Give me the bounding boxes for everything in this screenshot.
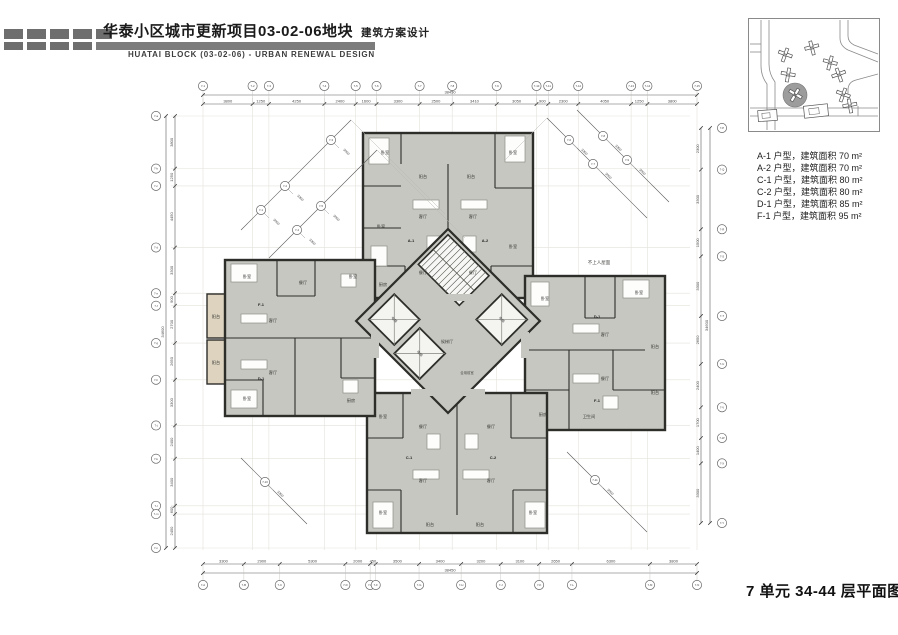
- dim-value: 3300: [169, 397, 174, 407]
- grid-bubble-label: 7-5: [354, 84, 358, 88]
- room-label: 厨房: [539, 411, 547, 418]
- dim-value: 2650: [169, 356, 174, 366]
- grid-bubble-label: 7-D: [343, 583, 348, 587]
- room-label: 餐厅: [419, 423, 427, 430]
- dim-value: 2700: [169, 319, 174, 329]
- wing-south: [367, 393, 547, 533]
- grid-bubble-label: 7-10: [534, 84, 540, 88]
- grid-bubble-label: 7-F: [374, 583, 378, 587]
- dim-value: 3300: [219, 558, 229, 563]
- unit-type-tag: C-2: [490, 455, 497, 460]
- room-label: 餐厅: [487, 423, 495, 430]
- dim-value: 1500: [695, 238, 700, 248]
- grid-bubble-label: 7-K: [537, 583, 541, 587]
- legend-item: C-2 户型，建筑面积 80 m²: [757, 186, 863, 198]
- room-label: 卫生间: [583, 413, 596, 420]
- dim-value: 2400: [169, 437, 174, 447]
- furniture: [525, 502, 545, 528]
- room-label: 卧室: [541, 295, 549, 302]
- furniture: [413, 200, 439, 209]
- grid-bubble-label: 7-13: [628, 84, 634, 88]
- dim-value: 1600: [362, 98, 372, 103]
- dim-value: 450: [370, 558, 377, 563]
- grid-bubble-label: 7-H: [459, 583, 464, 587]
- room-label: 餐厅: [299, 279, 307, 286]
- furniture: [343, 380, 358, 393]
- dim-value: 3800: [223, 98, 233, 103]
- grid-bubble-label: 7-h: [154, 378, 158, 382]
- tower-wing: [847, 99, 851, 105]
- dim-value: 2400: [336, 98, 346, 103]
- dim-chain: 7-A33007-B29007-C53007-D20007-E4507-F350…: [198, 558, 701, 589]
- project-subtitle-en: HUATAI BLOCK (03-02-06) - URBAN RENEWAL …: [104, 50, 375, 59]
- furniture: [573, 374, 599, 383]
- room-label: 阳台: [651, 343, 659, 350]
- furniture: [231, 264, 257, 282]
- furniture: [427, 434, 440, 449]
- dim-value: 900: [539, 98, 546, 103]
- dim-line: [567, 452, 647, 532]
- grid-bubble-label: 7-e: [154, 291, 158, 295]
- grid-bubble-label: 7-c: [154, 184, 158, 188]
- room-label: 卧室: [243, 395, 251, 402]
- dim-value: 2300: [559, 98, 569, 103]
- furniture: [465, 434, 478, 449]
- dim-value: 3500: [393, 558, 403, 563]
- corridor-opening: [411, 294, 485, 301]
- dim-value: 3300: [296, 194, 304, 202]
- grid-bubble-label: 7-n: [154, 546, 158, 550]
- grid-bubble-label: 7-f: [154, 304, 157, 308]
- dim-value: 3000: [342, 148, 350, 156]
- header-deco-block: [73, 42, 92, 50]
- header-rule-bar: [96, 42, 375, 50]
- core-label: 合用前室: [460, 370, 474, 375]
- unit-type-tag: A-1: [408, 238, 415, 243]
- dim-value: 3000: [606, 488, 614, 496]
- dim-chain: 7-138007-212507-342507-424007-516007-633…: [198, 81, 701, 105]
- dim-value: 3050: [512, 98, 522, 103]
- header-deco-block: [73, 29, 92, 39]
- header-deco-block: [4, 42, 23, 50]
- legend-item: A-1 户型，建筑面积 70 m²: [757, 150, 863, 162]
- dim-value: 4250: [292, 98, 302, 103]
- grid-bubble-label: 7-M: [648, 583, 653, 587]
- room-label: 卧室: [635, 289, 643, 296]
- diagonal-dim-chain: 7-113000: [567, 452, 647, 532]
- grid-bubble-label: 7-5: [319, 204, 323, 208]
- furniture: [623, 280, 649, 298]
- corridor-opening: [371, 332, 379, 358]
- dim-value: 3300: [276, 490, 284, 498]
- dim-value: 3300: [695, 281, 700, 291]
- lowrise-block: [758, 109, 778, 121]
- dim-value: 1250: [635, 98, 645, 103]
- highlighted-site-circle: [783, 83, 807, 107]
- dim-value: 4450: [169, 212, 174, 222]
- dim-value: 600: [169, 506, 174, 513]
- room-label: 客厅: [419, 477, 427, 484]
- grid-bubble-label: 7-U: [720, 362, 725, 366]
- grid-bubble-label: 7-2: [283, 184, 287, 188]
- dim-value: 3300: [308, 238, 316, 246]
- grid-bubble-label: 7-4: [322, 84, 326, 88]
- room-label: 厨房: [347, 397, 355, 404]
- diagonal-dim-chain: 7-833007-93000: [577, 110, 669, 202]
- core-label: 候梯厅: [441, 338, 454, 345]
- dim-total: 38450: [444, 567, 456, 572]
- unit-type-legend: A-1 户型，建筑面积 70 m² A-2 户型，建筑面积 70 m² C-1 …: [757, 150, 863, 222]
- room-label: 客厅: [469, 213, 477, 220]
- room-label: 厨房: [379, 281, 387, 288]
- room-label: 卧室: [243, 273, 251, 280]
- dim-value: 2400: [695, 380, 700, 390]
- grid-bubble-label: 7-L: [570, 583, 574, 587]
- unit-type-tag: A-2: [482, 238, 489, 243]
- dim-chain: 7-a38007-b12507-c44507-d33007-e9007-f270…: [151, 111, 176, 552]
- grid-bubble-label: 7-15: [694, 84, 700, 88]
- dim-value: 2450: [169, 526, 174, 536]
- tower-wing: [785, 76, 789, 82]
- header-deco-block: [50, 29, 69, 39]
- grid-bubble-label: 7-S: [720, 254, 724, 258]
- room-label: 餐厅: [601, 375, 609, 382]
- legend-item: F-1 户型，建筑面积 95 m²: [757, 210, 863, 222]
- room-label: 阳台: [467, 173, 475, 180]
- dim-value: 3300: [394, 98, 404, 103]
- dim-value: 900: [169, 295, 174, 302]
- dim-value: 6300: [606, 558, 616, 563]
- grid-bubble-label: 7-Q: [720, 168, 725, 172]
- dim-value: 2900: [257, 558, 267, 563]
- grid-bubble-label: 7-3: [329, 138, 333, 142]
- legend-item: C-1 户型，建筑面积 80 m²: [757, 174, 863, 186]
- unit-type-tag: D-1: [594, 314, 601, 319]
- room-label: 客厅: [487, 477, 495, 484]
- grid-bubble-label: 7-12: [575, 84, 581, 88]
- dim-value: 1250: [256, 98, 266, 103]
- header-deco-block: [4, 29, 23, 39]
- grid-bubble-label: 7-14: [645, 84, 651, 88]
- grid-bubble-label: 7-7: [418, 84, 422, 88]
- grid-bubble-label: 7-3: [267, 84, 271, 88]
- grid-bubble-label: 7-8: [601, 134, 605, 138]
- grid-bubble-label: 7-T: [720, 314, 724, 318]
- floor-plan-drawing: 电梯电梯电梯7-138007-212507-342507-424007-5160…: [145, 78, 745, 623]
- dim-value: 3100: [515, 558, 525, 563]
- project-title-cn: 华泰小区城市更新项目03-02-06地块: [103, 23, 353, 40]
- dim-value: 3300: [169, 265, 174, 275]
- grid-bubble-label: 7-6: [375, 84, 379, 88]
- grid-bubble-label: 7-l: [154, 504, 157, 508]
- dim-value: 2650: [551, 558, 561, 563]
- room-label: 卧室: [377, 223, 385, 230]
- room-label: 卧室: [379, 413, 387, 420]
- grid-bubble-label: 7-A: [201, 583, 205, 587]
- dim-value: 1400: [695, 445, 700, 455]
- header-deco-block: [27, 42, 46, 50]
- grid-bubble-label: 7-R: [720, 227, 725, 231]
- dim-value: 3300: [614, 144, 622, 152]
- grid-bubble-label: 7-N: [695, 583, 700, 587]
- grid-bubble-label: 7-m: [154, 512, 159, 516]
- grid-bubble-label: 7-4: [295, 228, 299, 232]
- grid-bubble-label: 7-V: [720, 405, 724, 409]
- room-label: 卧室: [379, 509, 387, 516]
- grid-bubble-label: 7-6: [567, 138, 571, 142]
- grid-bubble-label: 7-J: [499, 583, 503, 587]
- room-label: 卧室: [349, 273, 357, 280]
- grid-bubble-label: 7-P: [720, 126, 724, 130]
- grid-bubble-label: 7-Y: [720, 521, 724, 525]
- dim-value: 2000: [353, 558, 363, 563]
- dim-value: 3300: [580, 148, 588, 156]
- project-title-suffix: 建筑方案设计: [361, 27, 430, 39]
- dim-value: 3800: [669, 558, 679, 563]
- room-label: 客厅: [419, 213, 427, 220]
- dim-value: 2500: [431, 98, 441, 103]
- room-label: 客厅: [269, 317, 277, 324]
- room-label: 阳台: [651, 389, 659, 396]
- dim-value: 2650: [695, 335, 700, 345]
- header-deco-block: [27, 29, 46, 39]
- dim-line: [577, 110, 669, 202]
- header-deco-block: [50, 42, 69, 50]
- grid-bubble-label: 7-B: [242, 583, 246, 587]
- dim-value: 3300: [695, 194, 700, 204]
- room-label: 客厅: [601, 331, 609, 338]
- grid-bubble-label: 7-11: [592, 478, 598, 482]
- corridor-opening: [521, 332, 529, 358]
- furniture: [505, 136, 525, 162]
- furniture: [241, 360, 267, 369]
- grid-bubble-label: 7-9: [495, 84, 499, 88]
- dim-value: 3400: [436, 558, 446, 563]
- furniture: [463, 470, 489, 479]
- grid-bubble-label: 7-1: [259, 208, 263, 212]
- room-label: 阳台: [212, 313, 220, 320]
- dim-chain: 7-P23007-Q33007-R15007-S33007-T26507-U24…: [695, 123, 726, 527]
- tower-wing: [787, 68, 791, 74]
- furniture: [531, 282, 549, 306]
- dim-value: 3410: [470, 98, 480, 103]
- dim-value: 3000: [604, 172, 612, 180]
- room-label: 卧室: [509, 149, 517, 156]
- grid-bubble-label: 7-1: [201, 84, 205, 88]
- dim-value: 1250: [169, 172, 174, 182]
- project-title: 华泰小区城市更新项目03-02-06地块建筑方案设计: [103, 20, 430, 41]
- dim-value: 3800: [169, 137, 174, 147]
- room-label: 客厅: [269, 369, 277, 376]
- room-label: 餐厅: [469, 269, 477, 276]
- grid-bubble-label: 7-W: [719, 436, 724, 440]
- room-label: 卧室: [529, 509, 537, 516]
- room-label: 阳台: [476, 521, 484, 528]
- grid-bubble-label: 7-2: [251, 84, 255, 88]
- core-label: 不上人屋面: [588, 259, 611, 266]
- room-label: 阳台: [212, 359, 220, 366]
- legend-item: A-2 户型，建筑面积 70 m²: [757, 162, 863, 174]
- room-label: 卧室: [509, 243, 517, 250]
- grid-bubble-label: 7-G: [417, 583, 422, 587]
- grid-bubble-label: 7-8: [450, 84, 454, 88]
- grid-bubble-label: 7-C: [278, 583, 283, 587]
- dim-value: 3000: [272, 218, 280, 226]
- dim-value: 4050: [600, 98, 610, 103]
- grid-bubble-label: 7-7: [591, 162, 595, 166]
- grid-bubble-label: 7-b: [154, 167, 158, 171]
- grid-bubble-label: 7-X: [720, 461, 724, 465]
- dim-value: 3800: [668, 98, 678, 103]
- tower-wing: [849, 107, 853, 113]
- room-label: 餐厅: [419, 269, 427, 276]
- unit-type-tag: D-1: [258, 376, 265, 381]
- dim-value: 3000: [638, 168, 646, 176]
- grid-bubble-label: 7-9: [625, 158, 629, 162]
- room-label: 阳台: [419, 173, 427, 180]
- dim-value: 5300: [308, 558, 318, 563]
- grid-bubble-label: 7-a: [154, 114, 158, 118]
- dim-total: 34600: [704, 319, 709, 331]
- grid-bubble-label: 7-11: [546, 84, 552, 88]
- furniture: [573, 324, 599, 333]
- dim-value: 3300: [695, 488, 700, 498]
- dim-total: 34600: [160, 326, 165, 338]
- grid-bubble-label: 7-d: [154, 246, 158, 250]
- dim-value: 3400: [169, 477, 174, 487]
- sheet-title: 7 单元 34-44 层平面图: [746, 580, 898, 601]
- dim-value: 3000: [332, 214, 340, 222]
- furniture: [461, 200, 487, 209]
- unit-type-tag: F-1: [594, 398, 601, 403]
- room-label: 阳台: [426, 521, 434, 528]
- dim-value: 1700: [695, 417, 700, 427]
- lowrise-block: [803, 104, 828, 118]
- dim-total: 38450: [444, 89, 456, 94]
- dim-value: 3200: [476, 558, 486, 563]
- wing-west: [207, 260, 375, 416]
- room-label: 卧室: [381, 149, 389, 156]
- furniture: [241, 314, 267, 323]
- grid-bubble-label: 7-g: [154, 341, 158, 345]
- unit-type-tag: F-1: [258, 302, 265, 307]
- furniture: [603, 396, 618, 409]
- furniture: [373, 502, 393, 528]
- unit-type-tag: C-1: [406, 455, 413, 460]
- grid-bubble-label: 7-j: [154, 424, 157, 428]
- grid-bubble-label: 7-k: [154, 457, 158, 461]
- dim-value: 2300: [695, 144, 700, 154]
- site-plan-thumbnail: [748, 18, 880, 132]
- corridor-opening: [411, 389, 485, 396]
- legend-item: D-1 户型，建筑面积 85 m²: [757, 198, 863, 210]
- grid-bubble-label: 7-10: [262, 480, 268, 484]
